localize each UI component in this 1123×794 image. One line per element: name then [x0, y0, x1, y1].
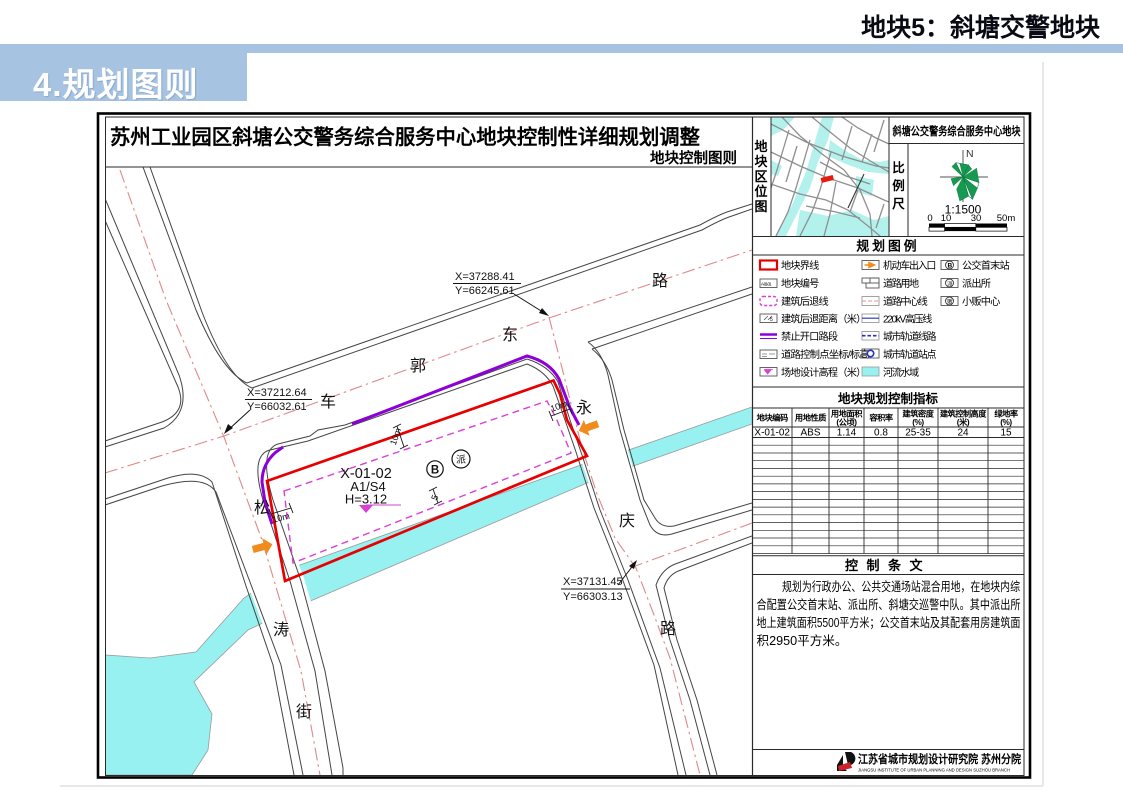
- svg-text:1.14: 1.14: [837, 428, 857, 439]
- svg-text:容积率: 容积率: [868, 413, 893, 423]
- svg-text:地: 地: [754, 139, 767, 154]
- svg-text:道路用地: 道路用地: [883, 277, 919, 290]
- svg-text:道路控制点坐标/标高: 道路控制点坐标/标高: [781, 348, 870, 361]
- svg-text:建筑后退线: 建筑后退线: [781, 295, 829, 308]
- svg-text:例: 例: [892, 178, 905, 193]
- svg-text:积2950平方米。: 积2950平方米。: [757, 633, 848, 648]
- svg-text:(公顷): (公顷): [836, 418, 857, 427]
- svg-text:(%): (%): [912, 418, 924, 427]
- svg-text:道路中心线: 道路中心线: [883, 295, 928, 308]
- svg-text:禁止开口路段: 禁止开口路段: [781, 330, 838, 343]
- svg-text:(米): (米): [957, 417, 970, 427]
- svg-text:用地性质: 用地性质: [794, 413, 826, 423]
- svg-text:斜塘公交警务综合服务中心地块: 斜塘公交警务综合服务中心地块: [892, 124, 1021, 138]
- svg-text:地块界线: 地块界线: [781, 259, 819, 272]
- svg-text:220kV高压线: 220kV高压线: [883, 313, 932, 326]
- svg-text:0: 0: [927, 213, 932, 224]
- svg-text:用地面积: 用地面积: [830, 409, 863, 419]
- svg-text:机动车出入口: 机动车出入口: [883, 259, 935, 272]
- svg-text:地上建筑面积5500平方米；公交首末站及其配套用房建筑面: 地上建筑面积5500平方米；公交首末站及其配套用房建筑面: [757, 615, 1021, 631]
- svg-text:0.8: 0.8: [874, 428, 888, 439]
- svg-text:(%): (%): [1000, 418, 1012, 427]
- svg-text:块: 块: [754, 154, 768, 169]
- svg-text:绿地率: 绿地率: [994, 409, 1018, 419]
- svg-text:规划为行政办公、公共交通场站混合用地，在地块内综: 规划为行政办公、公共交通场站混合用地，在地块内综: [782, 579, 1020, 594]
- svg-text:小贩中心: 小贩中心: [962, 295, 1000, 308]
- svg-text:派出所: 派出所: [962, 277, 991, 290]
- svg-text:30: 30: [971, 213, 982, 224]
- svg-text:合配置公交首末站、派出所、斜塘交巡警中队。其中派出所: 合配置公交首末站、派出所、斜塘交巡警中队。其中派出所: [757, 597, 1021, 612]
- svg-text:建筑控制高度: 建筑控制高度: [940, 409, 987, 419]
- svg-text:JIANGSU INSTITUTE OF URBAN PLA: JIANGSU INSTITUTE OF URBAN PLANNING AND …: [858, 768, 1010, 773]
- svg-text:地块编码: 地块编码: [757, 413, 788, 423]
- svg-text:50m: 50m: [997, 213, 1016, 224]
- svg-text:图: 图: [754, 199, 767, 214]
- svg-text:10: 10: [941, 213, 952, 224]
- svg-text:建筑后退距离（米）: 建筑后退距离（米）: [781, 313, 866, 326]
- svg-text:地块规划控制指标: 地块规划控制指标: [838, 391, 939, 406]
- svg-text:25-35: 25-35: [905, 428, 931, 439]
- svg-text:控制条文: 控制条文: [845, 558, 931, 573]
- svg-text:15: 15: [1000, 428, 1012, 439]
- svg-text:比: 比: [892, 160, 905, 175]
- svg-text:位: 位: [754, 184, 767, 199]
- svg-text:城市轨道线路: 城市轨道线路: [883, 330, 937, 343]
- svg-text:建筑密度: 建筑密度: [902, 409, 934, 419]
- svg-text:X-01-02: X-01-02: [754, 428, 790, 439]
- svg-text:河流水域: 河流水域: [883, 366, 919, 379]
- svg-text:地块编号: 地块编号: [781, 277, 819, 290]
- svg-text:江苏省城市规划设计研究院 苏州分院: 江苏省城市规划设计研究院 苏州分院: [858, 752, 1021, 766]
- svg-text:规划图例: 规划图例: [856, 239, 919, 254]
- svg-text:场地设计高程（米）: 场地设计高程（米）: [781, 366, 866, 379]
- svg-text:N: N: [966, 148, 974, 160]
- svg-text:24: 24: [957, 428, 969, 439]
- svg-text:城市轨道站点: 城市轨道站点: [883, 348, 937, 361]
- svg-text:尺: 尺: [892, 197, 905, 211]
- svg-text:公交首末站: 公交首末站: [962, 259, 1010, 272]
- svg-text:区: 区: [754, 169, 767, 184]
- svg-text:A-01-01: A-01-01: [761, 282, 772, 287]
- svg-text:ABS: ABS: [800, 428, 820, 439]
